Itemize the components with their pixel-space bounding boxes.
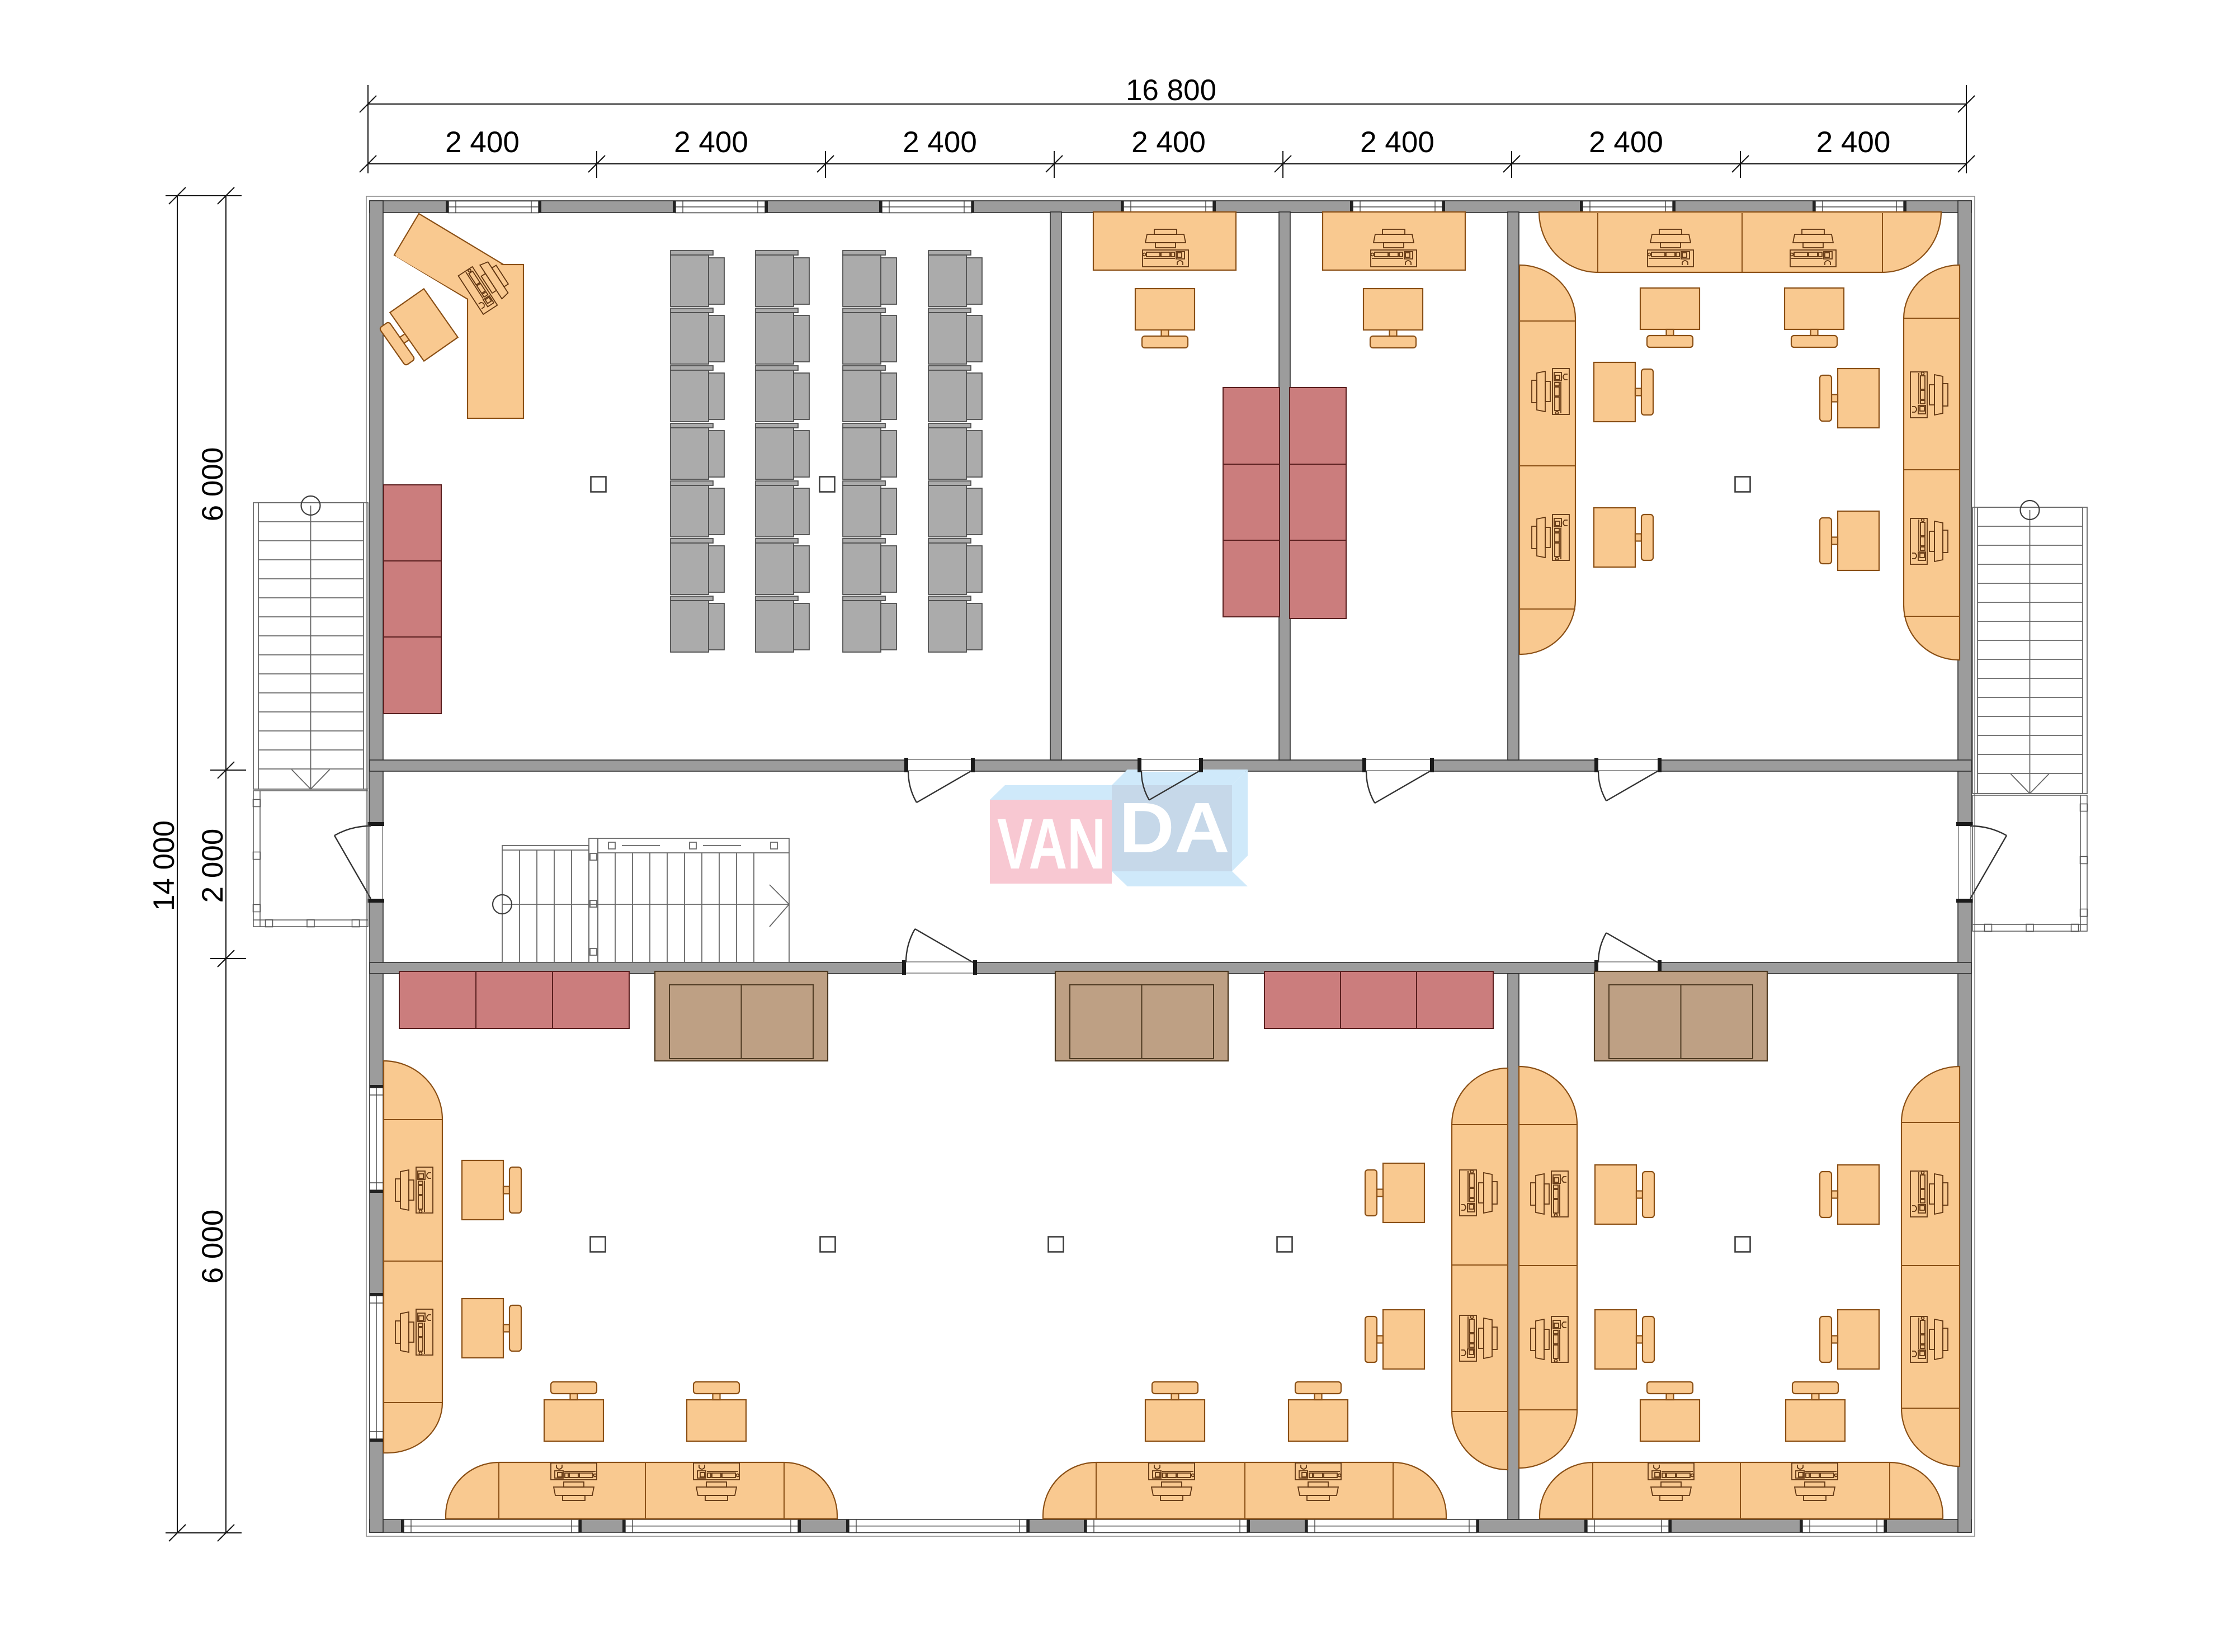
svg-text:2 400: 2 400	[1360, 126, 1434, 159]
svg-text:2 400: 2 400	[1816, 126, 1891, 159]
svg-text:2 400: 2 400	[1131, 126, 1206, 159]
svg-text:16 800: 16 800	[1126, 74, 1216, 107]
svg-text:DA: DA	[1119, 788, 1230, 868]
svg-text:2 400: 2 400	[1589, 126, 1663, 159]
svg-text:2 400: 2 400	[674, 126, 748, 159]
svg-text:2 400: 2 400	[903, 126, 977, 159]
svg-text:2 400: 2 400	[445, 126, 520, 159]
svg-text:6 000: 6 000	[196, 1210, 229, 1284]
svg-text:2 000: 2 000	[196, 829, 229, 903]
svg-text:6 000: 6 000	[196, 447, 229, 522]
svg-text:14 000: 14 000	[148, 820, 181, 911]
svg-text:VAN: VAN	[997, 804, 1106, 884]
